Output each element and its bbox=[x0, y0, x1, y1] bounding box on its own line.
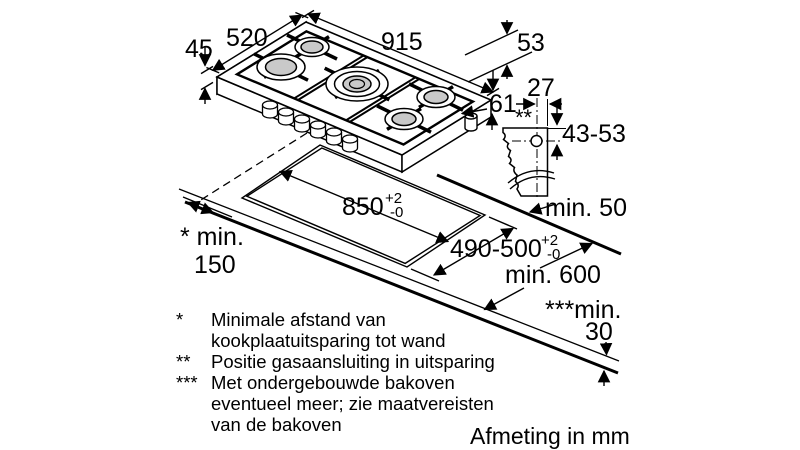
footnote-text: kookplaatuitsparing tot wand bbox=[211, 330, 536, 351]
dim-520-tick bbox=[206, 68, 219, 73]
knob-top bbox=[327, 128, 342, 136]
footnotes: * Minimale afstand van kookplaatuitspari… bbox=[176, 309, 536, 435]
dim-min600-arrow-down bbox=[485, 288, 525, 310]
dim-53-label: 53 bbox=[517, 29, 545, 57]
dim-61-label: 61 bbox=[489, 90, 517, 118]
dim-min600-label: min. 600 bbox=[505, 261, 601, 289]
dim-min150-label-line2: 150 bbox=[194, 251, 236, 279]
burner-cap bbox=[424, 91, 448, 104]
dim-45-tick bbox=[201, 82, 213, 89]
knob-top bbox=[295, 115, 310, 123]
burner-cap bbox=[301, 41, 323, 53]
dim-min150-label-line1: * min. bbox=[180, 223, 244, 251]
dim-43-53-label: 43-53 bbox=[562, 120, 626, 148]
dim-520-label: 520 bbox=[226, 24, 268, 52]
knob-top bbox=[279, 108, 294, 116]
dim-27-label: 27 bbox=[527, 74, 555, 102]
footnote-gas-position: ** Positie gasaansluiting in uitsparing bbox=[176, 351, 536, 372]
knob-top bbox=[263, 101, 278, 109]
units-caption: Afmeting in mm bbox=[470, 423, 630, 450]
dim-850-label: 850 bbox=[342, 193, 384, 221]
footnote-text: Met ondergebouwde bakoven bbox=[211, 372, 536, 393]
footnote-text: Minimale afstand van bbox=[211, 309, 536, 330]
burner-cap bbox=[392, 113, 416, 126]
dim-min30-label-line2: 30 bbox=[585, 318, 613, 346]
footnote-text: eventueel meer; zie maatvereisten bbox=[211, 393, 536, 414]
dim-490-500-ext bbox=[489, 217, 517, 229]
burner-cap bbox=[266, 59, 297, 76]
burner-cap bbox=[343, 76, 371, 92]
footnote-marker: * bbox=[176, 309, 211, 351]
knob-top bbox=[311, 121, 326, 129]
dim-45-label: 45 bbox=[185, 35, 213, 63]
dim-min50-label: min. 50 bbox=[545, 194, 627, 222]
gas-connection-hole bbox=[531, 136, 542, 147]
gas-position-marker: ** bbox=[515, 105, 533, 130]
footnote-marker: *** bbox=[176, 372, 211, 435]
dim-490-500-label: 490-500 bbox=[450, 235, 542, 263]
installation-drawing: 45 520 915 53 61 27 ** 43-53 min. 50 850… bbox=[0, 0, 800, 450]
footnote-side-wall: * Minimale afstand van kookplaatuitspari… bbox=[176, 309, 536, 351]
dim-915-label: 915 bbox=[381, 28, 423, 56]
dim-53-ext bbox=[465, 30, 518, 55]
footnote-marker: ** bbox=[176, 351, 211, 372]
knob-top bbox=[343, 135, 358, 143]
dim-850-tol-minus: -0 bbox=[390, 204, 403, 221]
burner-center-wok bbox=[325, 67, 390, 101]
footnote-text: Positie gasaansluiting in uitsparing bbox=[211, 351, 536, 372]
